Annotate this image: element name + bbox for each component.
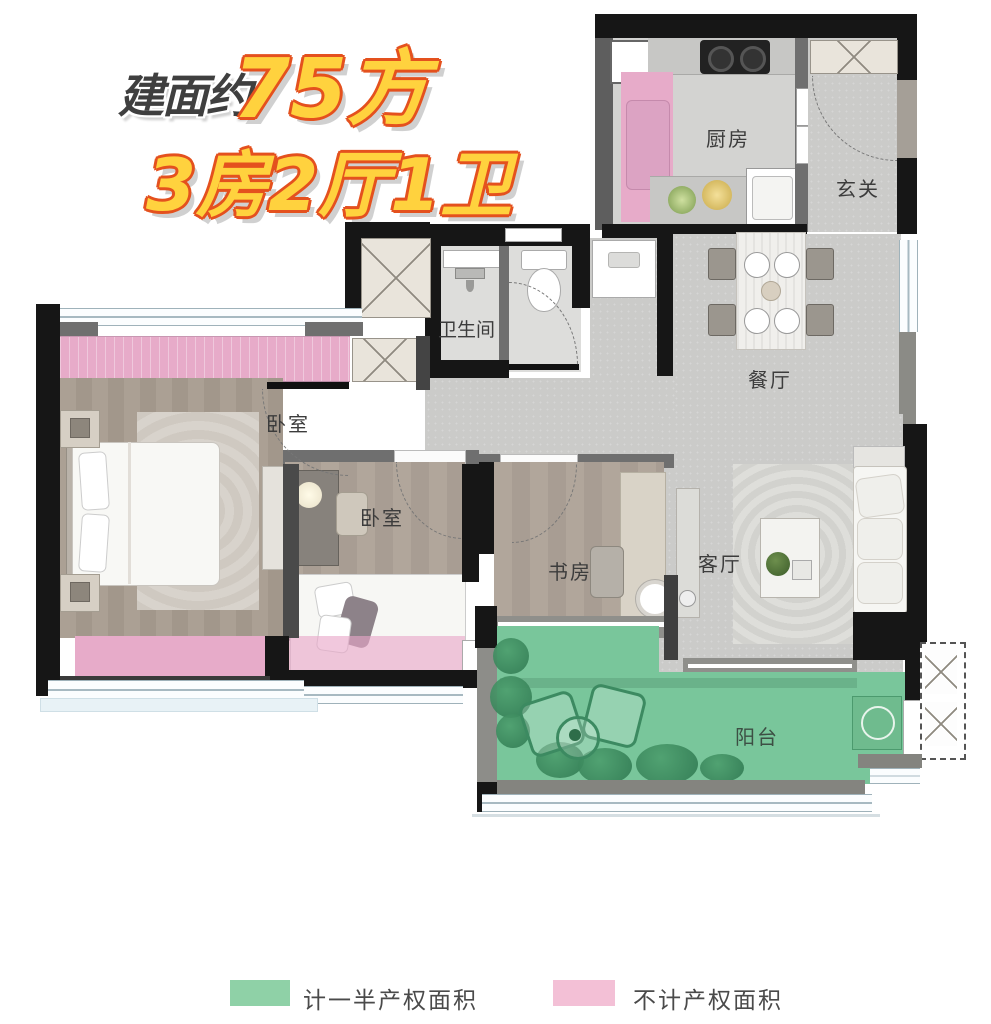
pillow bbox=[78, 451, 110, 511]
wall bbox=[897, 158, 917, 234]
pillow bbox=[78, 513, 110, 573]
title-layout: 3房2厅1卫 bbox=[146, 126, 512, 231]
ac-unit bbox=[925, 702, 957, 746]
plant bbox=[700, 754, 744, 782]
vanity-basin bbox=[608, 252, 640, 268]
wall bbox=[416, 336, 430, 390]
kitchen-sink-basin bbox=[752, 176, 793, 220]
shower-head bbox=[466, 280, 474, 292]
wall bbox=[858, 754, 922, 768]
window-sill bbox=[40, 698, 318, 712]
wall bbox=[475, 606, 497, 648]
master-closet-pink bbox=[60, 336, 350, 382]
room-label-living: 客厅 bbox=[698, 548, 742, 577]
wall bbox=[572, 224, 590, 308]
wall bbox=[345, 238, 361, 318]
washing-machine-door bbox=[861, 706, 895, 740]
room-label-entry: 玄关 bbox=[836, 173, 880, 202]
room-label-balcony: 阳台 bbox=[735, 721, 779, 750]
sliding-door-track bbox=[688, 664, 852, 668]
food-plate bbox=[668, 186, 696, 214]
plate bbox=[774, 252, 800, 278]
wall bbox=[283, 464, 299, 638]
sofa-cushion bbox=[857, 518, 903, 560]
legend-swatch-half-property bbox=[230, 980, 290, 1006]
legend-label-half-property: 计一半产权面积 bbox=[303, 981, 478, 1015]
shaft-box bbox=[361, 238, 431, 318]
room-label-dining: 餐厅 bbox=[748, 364, 792, 393]
toilet-tank bbox=[521, 250, 567, 270]
master-bottom-window bbox=[48, 680, 304, 700]
balcony-shadow bbox=[500, 678, 857, 688]
dining-chair bbox=[806, 248, 834, 280]
master-door-leaf bbox=[267, 382, 349, 389]
wall-textured bbox=[897, 80, 917, 160]
wall bbox=[595, 14, 917, 38]
dining-chair bbox=[708, 248, 736, 280]
wall bbox=[478, 462, 494, 554]
study-seat bbox=[590, 546, 624, 598]
table-centerpiece bbox=[761, 281, 781, 301]
dining-chair bbox=[708, 304, 736, 336]
wall bbox=[657, 224, 673, 376]
legend-label-no-property: 不计产权面积 bbox=[633, 981, 783, 1015]
plate bbox=[744, 252, 770, 278]
bathroom-window bbox=[505, 228, 562, 242]
dining-chair bbox=[806, 304, 834, 336]
plate bbox=[744, 308, 770, 334]
nightstand-lamp bbox=[70, 582, 90, 602]
blanket-edge bbox=[128, 442, 131, 584]
desk-lamp bbox=[296, 482, 322, 508]
stove-burner bbox=[708, 46, 734, 72]
dining-window bbox=[899, 240, 918, 332]
plant bbox=[636, 744, 698, 784]
title-prefix: 建面约 bbox=[118, 60, 250, 126]
nightstand-lamp bbox=[70, 418, 90, 438]
room-label-bedroom-master: 卧室 bbox=[266, 408, 310, 437]
plant bbox=[493, 638, 529, 674]
floor-plan-canvas: 建面约 75方 3房2厅1卫 厨房 玄关 卫生间 bbox=[0, 0, 991, 1024]
balcony-window bbox=[482, 794, 872, 812]
title-area-value: 75方 bbox=[233, 22, 429, 141]
entry-closet bbox=[810, 40, 898, 74]
wall bbox=[36, 304, 60, 696]
ac-unit bbox=[925, 650, 957, 694]
wall bbox=[305, 322, 363, 336]
sofa-cushion bbox=[854, 473, 905, 519]
wall bbox=[499, 246, 509, 372]
bedroom2-window bbox=[293, 686, 463, 704]
vanity bbox=[592, 240, 656, 298]
wall bbox=[477, 648, 497, 782]
shower-fixture bbox=[455, 268, 485, 279]
table-tray bbox=[792, 560, 812, 580]
plate bbox=[774, 308, 800, 334]
room-label-bedroom2: 卧室 bbox=[360, 502, 404, 531]
wall bbox=[899, 332, 916, 424]
window-sill-line bbox=[472, 814, 880, 817]
sofa-cushion bbox=[857, 562, 903, 604]
balcony-table-plant bbox=[569, 729, 581, 741]
stove-burner bbox=[740, 46, 766, 72]
legend-swatch-no-property bbox=[553, 980, 615, 1006]
ac-box bbox=[352, 338, 418, 382]
table-plant bbox=[766, 552, 790, 576]
balcony-window bbox=[870, 768, 920, 784]
wall bbox=[425, 360, 509, 378]
room-label-study: 书房 bbox=[548, 556, 592, 585]
wall bbox=[897, 14, 917, 84]
bathroom-window bbox=[443, 250, 500, 268]
wall bbox=[462, 464, 479, 582]
food-plate bbox=[702, 180, 732, 210]
speaker bbox=[679, 590, 696, 607]
wall bbox=[497, 780, 865, 794]
wall bbox=[345, 222, 430, 238]
ac-platform-door bbox=[903, 700, 921, 756]
master-bay-window-pink bbox=[75, 636, 267, 678]
room-label-kitchen: 厨房 bbox=[706, 123, 750, 152]
side-table bbox=[853, 446, 905, 468]
wall bbox=[664, 575, 678, 660]
wall bbox=[853, 612, 911, 660]
dresser bbox=[262, 466, 284, 570]
room-label-bathroom: 卫生间 bbox=[438, 315, 495, 342]
